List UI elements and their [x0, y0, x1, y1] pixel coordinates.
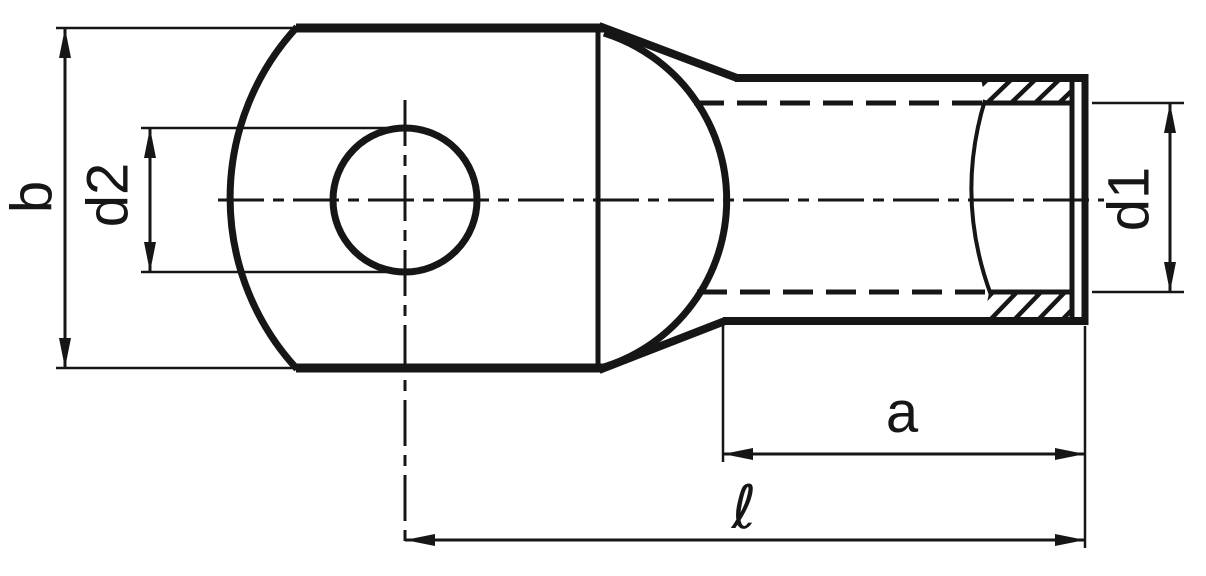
dimension-label-a: a: [886, 380, 919, 445]
hatch-line: [1038, 291, 1066, 320]
dimension-label-d2: d2: [75, 163, 140, 228]
hatch-line: [1014, 291, 1042, 320]
dimension-l: ℓ: [405, 473, 1085, 543]
hatch-line: [966, 291, 994, 320]
section-break-line: [971, 100, 991, 295]
technical-drawing-canvas: b d2 d1 a ℓ: [0, 0, 1206, 576]
cable-lug-dimension-drawing: b d2 d1 a ℓ: [0, 0, 1206, 576]
dimension-label-d1: d1: [1096, 167, 1161, 232]
dimension-d1: d1: [1092, 103, 1184, 292]
dimension-label-l: ℓ: [731, 473, 757, 543]
palm-left-arc: [230, 27, 297, 369]
hatch-line: [990, 291, 1018, 320]
dimension-label-b: b: [0, 181, 64, 213]
taper-bottom-edge: [599, 321, 725, 370]
dimension-a: a: [723, 322, 1085, 548]
lug-outline: [230, 26, 1087, 370]
